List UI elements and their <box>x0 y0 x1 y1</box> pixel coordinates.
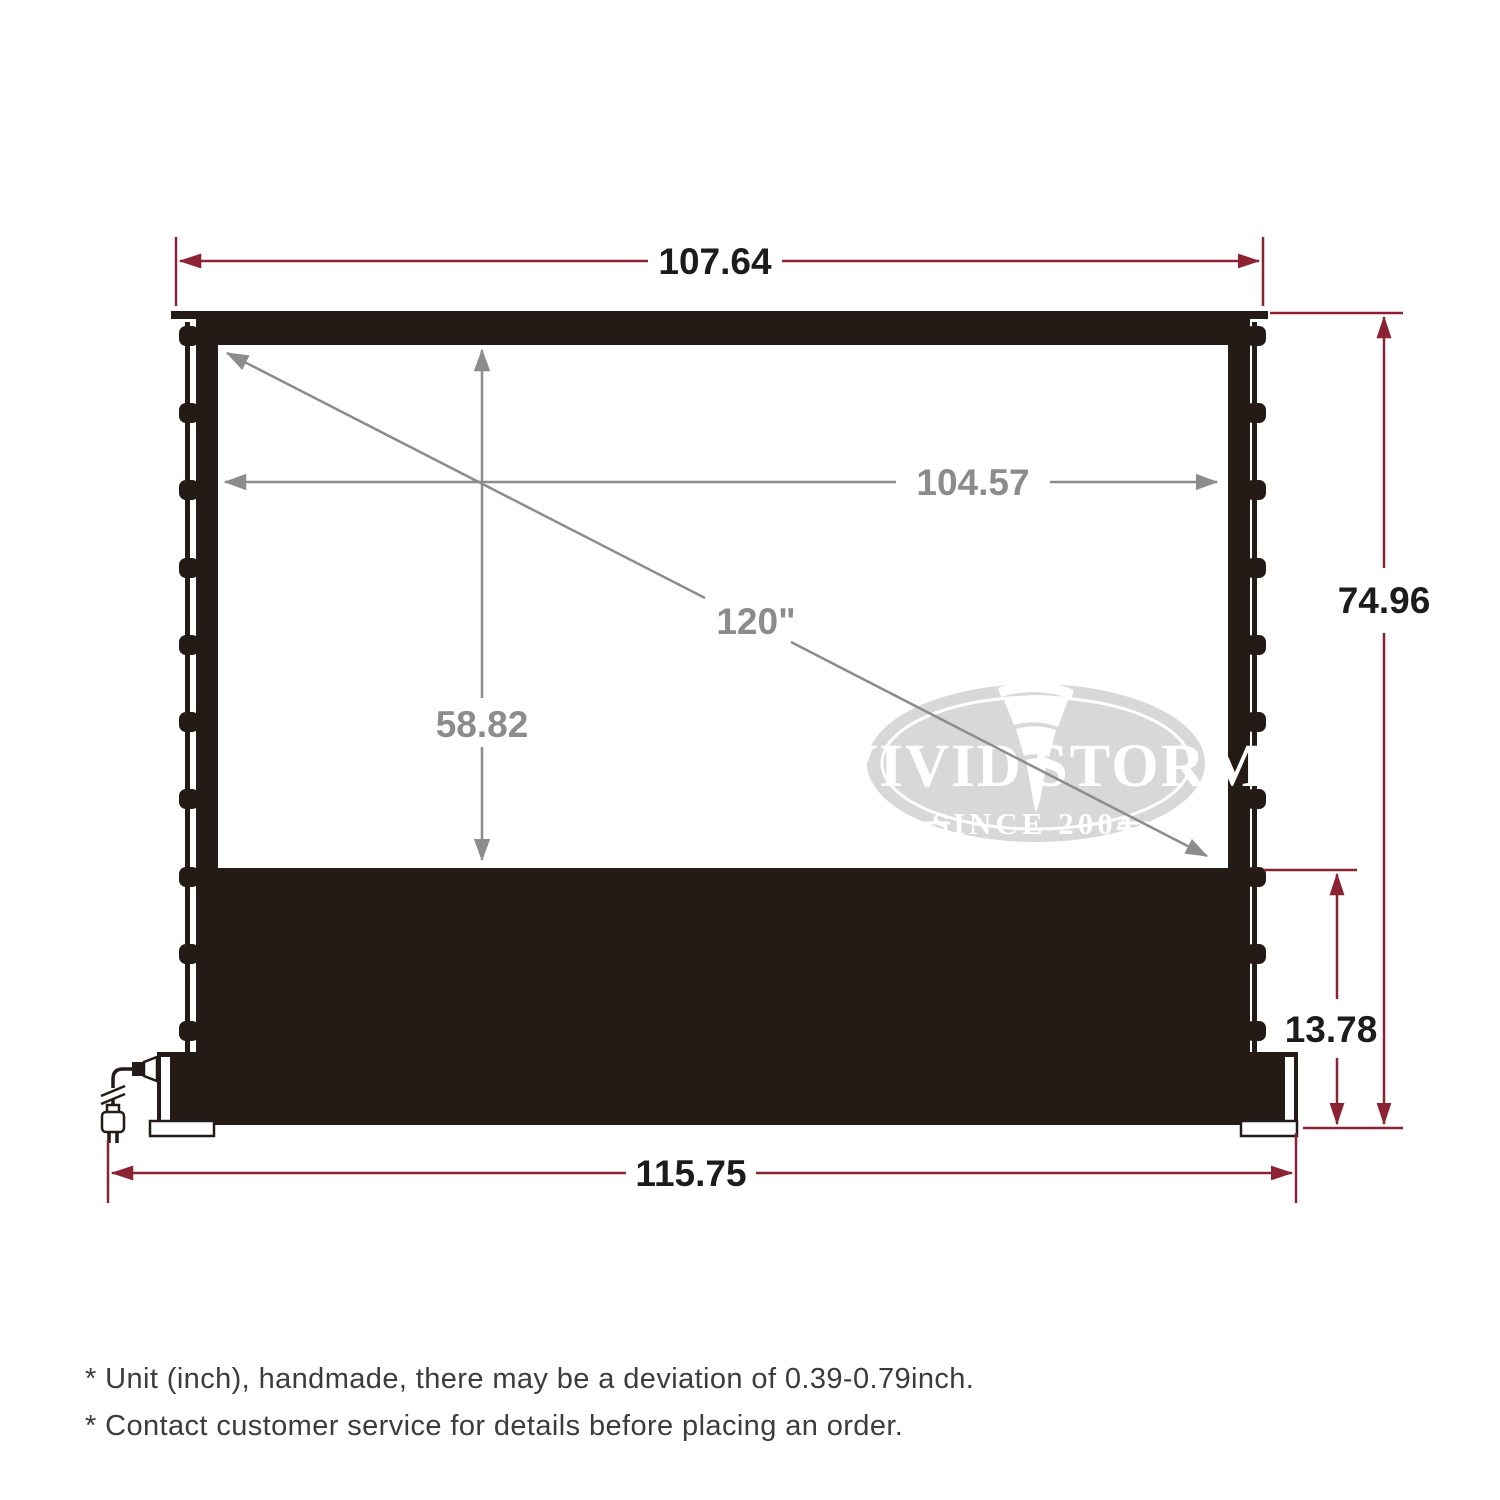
housing-left-cap <box>161 1057 170 1120</box>
cord-line-upper <box>113 1069 132 1088</box>
dim-base-height-label: 13.78 <box>1285 1009 1378 1050</box>
frame-top-lip <box>171 311 1268 319</box>
frame-top-bar <box>196 319 1250 346</box>
frame-right-bar <box>1228 319 1250 1052</box>
dim-base-width-label: 115.75 <box>635 1153 746 1194</box>
screen-black-drop <box>218 868 1228 1052</box>
housing-body <box>157 1052 1298 1125</box>
floor-housing <box>150 1052 1298 1136</box>
housing-left-foot <box>150 1121 214 1136</box>
plug-body <box>102 1112 124 1132</box>
housing-right-foot <box>1241 1121 1297 1136</box>
footnote-unit-deviation: * Unit (inch), handmade, there may be a … <box>85 1363 974 1396</box>
power-cord <box>101 1057 157 1143</box>
dim-viewing-height-label: 58.82 <box>436 704 529 745</box>
logo-word-storm: STORM <box>1034 733 1267 800</box>
dim-top-width-label: 107.64 <box>658 241 772 282</box>
footnote-contact-service: * Contact customer service for details b… <box>85 1410 903 1443</box>
housing-right-cap <box>1285 1057 1294 1120</box>
cord-nozzle <box>144 1057 157 1081</box>
logo-tagline: SINCE 2004 <box>932 806 1137 841</box>
dim-diagonal-label: 120" <box>716 601 795 642</box>
product-dimension-diagram: VIVID STORM SINCE 2004 <box>0 0 1500 1500</box>
frame-left-rail <box>185 322 190 1052</box>
dim-viewing-width-label: 104.57 <box>916 462 1029 503</box>
dim-overall-height-label: 74.96 <box>1338 580 1431 621</box>
logo-word-vivid: VIVID <box>833 733 1023 800</box>
cord-barrel <box>132 1062 144 1076</box>
screen-diagram-svg: VIVID STORM SINCE 2004 <box>0 0 1500 1500</box>
frame-left-bar <box>196 319 218 1052</box>
frame-right-rail <box>1252 322 1257 1052</box>
